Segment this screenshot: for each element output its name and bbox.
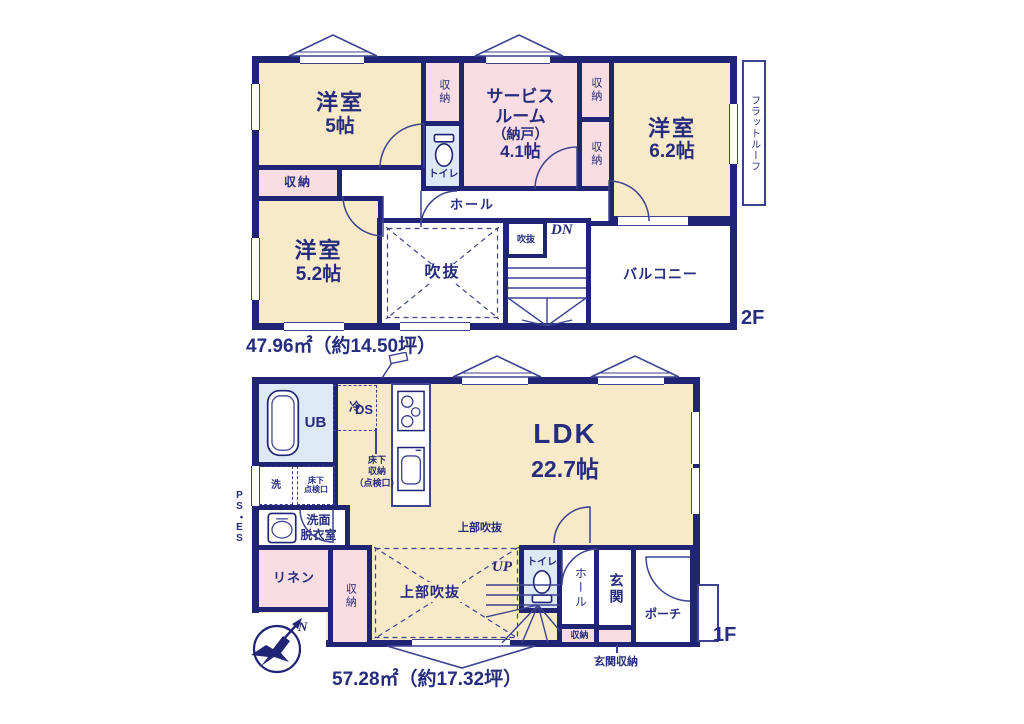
genkan-storage-label: 玄関収納 [594, 653, 638, 669]
room-name: 洋室 [316, 90, 364, 115]
up-label: UP [492, 559, 512, 576]
window [400, 322, 470, 331]
upper-void-top-label: 上部吹抜 [458, 519, 502, 535]
void-label: 吹抜 [421, 264, 463, 282]
underfloor-line3: （点検口） [348, 478, 406, 489]
washroom: 洗面 脱衣室 [254, 505, 350, 550]
void-small-label: 吹抜 [517, 234, 535, 244]
window [729, 104, 738, 164]
void-small-2f: 吹抜 [505, 220, 547, 258]
compass-icon: N [246, 614, 312, 676]
roof-vent-icon [452, 354, 542, 378]
floor1-label: 1F [713, 624, 736, 647]
stairs-1f [486, 577, 560, 643]
ldk-label: LDK 22.7帖 [495, 418, 635, 484]
washroom-line2: 脱衣室 [300, 528, 336, 542]
stairs-2f [508, 258, 586, 326]
floor-hatch: 床下 点検口 [297, 466, 335, 505]
ldk-size: 22.7帖 [495, 450, 635, 484]
genkan-storage-pointer [616, 645, 618, 653]
room-size: 5.2帖 [296, 264, 341, 286]
closet-label: 収納 [570, 630, 588, 640]
service-line2: ルーム [495, 107, 546, 127]
ub-label: UB [305, 414, 327, 431]
room-name: 洋室 [648, 116, 696, 141]
toilet-label: トイレ [527, 557, 557, 569]
closet-label: 収納 [589, 77, 602, 103]
window [618, 216, 688, 226]
bathtub-icon [266, 387, 300, 459]
linen-label: リネン [273, 571, 315, 586]
void-area-2f: 吹抜 [377, 218, 508, 328]
flat-roof-label: フラットルーフ [747, 95, 762, 172]
washbasin-icon [267, 512, 297, 544]
floor2-label: 2F [741, 307, 764, 330]
porch: ポーチ [631, 545, 695, 647]
toilet-label: トイレ [429, 169, 459, 181]
balcony-label: バルコニー [623, 266, 698, 282]
service-line3: （納戸） [493, 126, 549, 142]
linen-closet: リネン [254, 545, 334, 612]
roof-vent-icon [288, 33, 378, 57]
flat-roof: フラットルーフ [742, 60, 766, 206]
window [251, 238, 260, 300]
underfloor-storage-label: 床下 収納 （点検口） [348, 455, 406, 489]
room-name: 洋室 [294, 238, 342, 263]
room-western-52: 洋室 5.2帖 [254, 196, 383, 328]
room-size: 5帖 [325, 116, 355, 138]
room-western-62: 洋室 6.2帖 [609, 58, 735, 221]
porch-label: ポーチ [645, 608, 681, 622]
room-size: 6.2帖 [649, 141, 694, 163]
bathroom-ub: UB [254, 379, 338, 467]
closet-label: 収納 [437, 79, 450, 105]
window [691, 468, 700, 514]
window [251, 84, 260, 130]
floor1-area-label: 57.28㎡（約17.32坪） [332, 664, 522, 691]
underfloor-line1: 床下 [348, 455, 406, 466]
toilet-icon [432, 133, 456, 169]
closet-1f: 収納 [328, 545, 372, 647]
roof-vent-icon [590, 354, 680, 378]
dn-label: DN [551, 222, 573, 239]
ds-label: DS [355, 402, 373, 417]
underfloor-pointer-line [375, 428, 377, 454]
room-western-5: 洋室 5帖 [254, 58, 426, 170]
floor2-area-label: 47.96㎡（約14.50坪） [246, 331, 436, 358]
ldk-name: LDK [495, 418, 635, 450]
service-line4: 4.1帖 [500, 142, 541, 162]
genkan-label: 玄関 [608, 573, 624, 605]
compass-north-label: N [297, 619, 308, 634]
hall-label-2f: ホール [450, 194, 495, 213]
window [691, 412, 700, 464]
stove-icon [397, 390, 425, 432]
washer-label: 洗 [271, 480, 281, 491]
balcony: バルコニー [586, 221, 735, 328]
service-line1: サービス [487, 87, 555, 107]
floorplan-page: 洋室 5帖 収納 トイレ サービス ルーム （納戸） 4.1帖 収納 収納 洋室… [0, 0, 1024, 724]
washer-space: 洗 [259, 466, 293, 505]
closet-label: 収納 [344, 583, 357, 609]
service-room: サービス ルーム （納戸） 4.1帖 [459, 58, 582, 191]
hatch-line2: 点検口 [304, 486, 328, 495]
hall-label: ホール [573, 567, 587, 609]
upper-void-label: 上部吹抜 [398, 582, 462, 602]
washroom-line1: 洗面 [300, 513, 336, 527]
roof-vent-icon [474, 33, 564, 57]
closet-label: 収納 [589, 141, 602, 167]
ps-es-label: PS・ES [232, 490, 247, 554]
closet-label: 収納 [284, 176, 312, 190]
window [284, 322, 344, 331]
underfloor-line2: 収納 [348, 466, 406, 477]
